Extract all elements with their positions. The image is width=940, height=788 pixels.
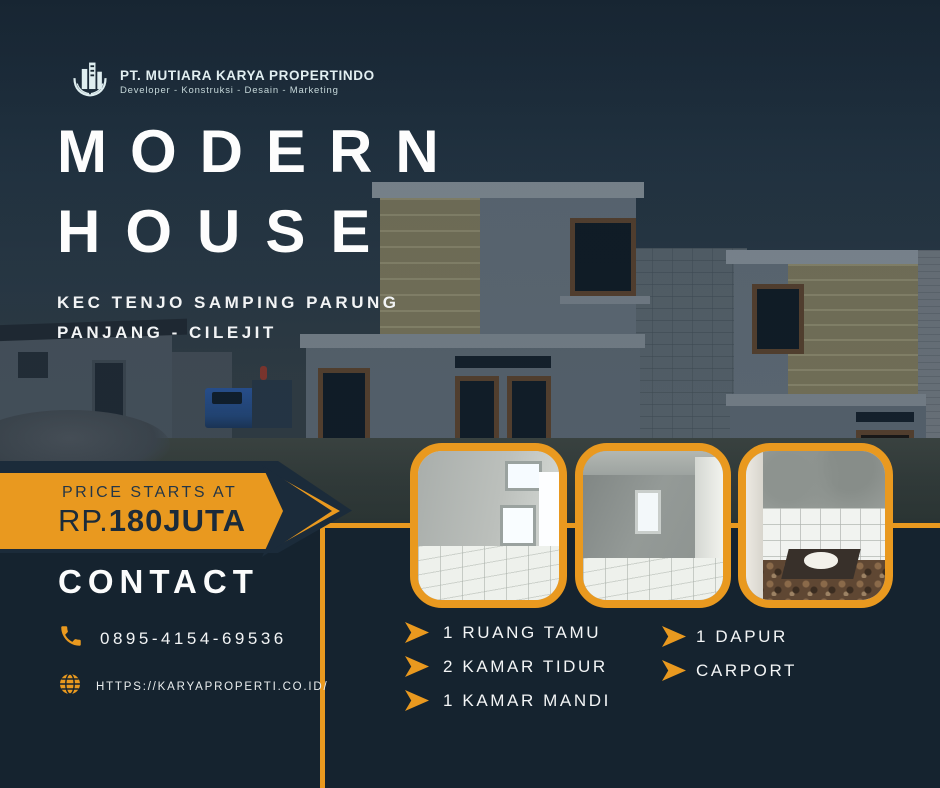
building-with-laurel-icon (68, 58, 112, 105)
contact-heading: CONTACT (58, 563, 329, 601)
feature-label: 1 KAMAR MANDI (443, 691, 611, 711)
feature-list-right: 1 DAPUR CARPORT (662, 626, 797, 681)
title-line-1: MODERN (57, 122, 462, 182)
arrow-right-bullet-icon (405, 656, 429, 677)
living-room-photo (410, 443, 567, 608)
globe-icon (58, 672, 82, 701)
price-prefix: RP. (58, 503, 109, 538)
website-url: HTTPS://KARYAPROPERTI.CO.ID/ (96, 681, 329, 693)
feature-item: 1 RUANG TAMU (405, 622, 611, 643)
bedroom-photo (575, 443, 731, 608)
phone-number: 0895-4154-69536 (100, 629, 287, 649)
arrow-right-bullet-icon (405, 622, 429, 643)
feature-item: CARPORT (662, 660, 797, 681)
company-tagline: Developer - Konstruksi - Desain - Market… (120, 85, 375, 96)
location-line-2: PANJANG - CILEJIT (57, 318, 462, 348)
company-name: PT. MUTIARA KARYA PROPERTINDO (120, 68, 375, 83)
feature-item: 1 DAPUR (662, 626, 797, 647)
feature-item: 1 KAMAR MANDI (405, 690, 611, 711)
title-line-2: HOUSE (57, 202, 462, 262)
company-logo: PT. MUTIARA KARYA PROPERTINDO Developer … (68, 58, 375, 105)
feature-label: 1 RUANG TAMU (443, 623, 601, 643)
arrow-right-bullet-icon (662, 626, 686, 647)
arrow-right-bullet-icon (662, 660, 686, 681)
property-flyer: PT. MUTIARA KARYA PROPERTINDO Developer … (0, 0, 940, 788)
arrow-right-bullet-icon (405, 690, 429, 711)
location-line-1: KEC TENJO SAMPING PARUNG (57, 288, 462, 318)
price-value: RP.180JUTA (58, 503, 246, 539)
contact-section: CONTACT 0895-4154-69536 HTTPS://KARYAPR (58, 563, 329, 701)
feature-label: 1 DAPUR (696, 627, 788, 647)
phone-icon (58, 623, 84, 654)
feature-item: 2 KAMAR TIDUR (405, 656, 611, 677)
bathroom-photo (738, 443, 893, 608)
price-amount: 180JUTA (109, 503, 246, 538)
feature-label: CARPORT (696, 661, 797, 681)
price-label: PRICE STARTS AT (62, 484, 237, 502)
feature-list-left: 1 RUANG TAMU 2 KAMAR TIDUR 1 KAMAR MANDI (405, 622, 611, 711)
feature-label: 2 KAMAR TIDUR (443, 657, 608, 677)
